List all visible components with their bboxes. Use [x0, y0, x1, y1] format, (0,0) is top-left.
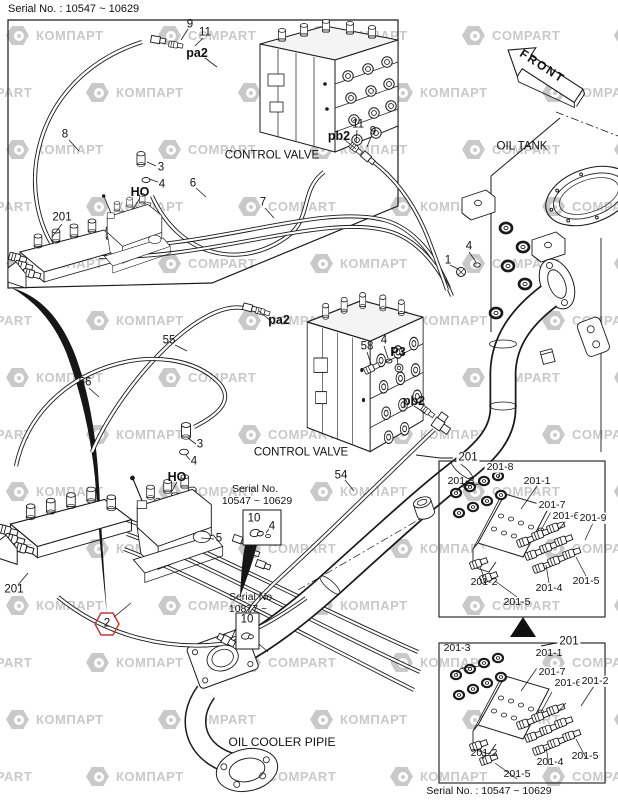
diagram-art [0, 0, 618, 800]
serial-number-top: Serial No. : 10547 ~ 10629 [8, 3, 139, 15]
parts-diagram-page: { "header": { "serial_top": "Serial No. … [0, 0, 618, 800]
